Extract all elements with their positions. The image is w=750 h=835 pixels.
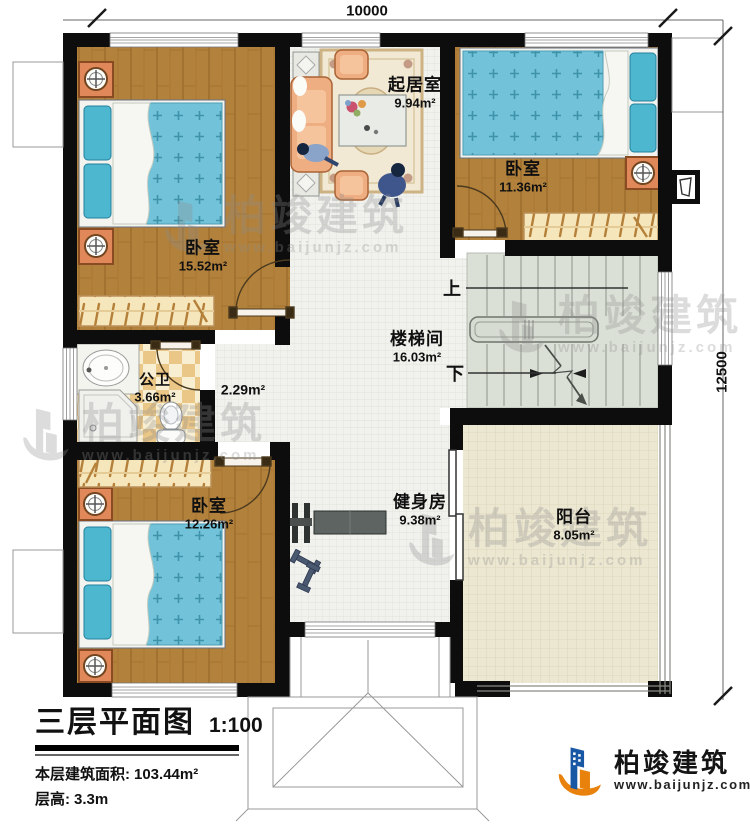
brand-name: 柏竣建筑: [614, 750, 750, 777]
nightstand: [79, 229, 113, 264]
watermark: 柏竣建筑 www.baijunjz.com: [492, 295, 742, 356]
stairs-up-label: 上: [443, 275, 461, 301]
flue: [672, 170, 700, 204]
watermark-logo-icon: [16, 405, 74, 463]
brand-logo-icon: [552, 744, 606, 798]
room-label-living-room: 起居室 9.94m²: [388, 75, 442, 110]
bed: [460, 48, 658, 158]
floor-height-value: 3.3m: [74, 791, 108, 808]
nightstand: [79, 488, 112, 520]
floor-area-label: 本层建筑面积:: [35, 766, 130, 783]
dimension-width: 10000: [346, 3, 388, 20]
room-label-bathroom: 公卫 3.66m²: [134, 371, 175, 404]
room-label-bedroom-bottom-left: 卧室 12.26m²: [185, 496, 233, 531]
wardrobe: [79, 296, 214, 326]
wardrobe: [524, 213, 658, 241]
brand-website: www.baijunjz.com: [614, 777, 750, 792]
plan-title: 三层平面图: [35, 697, 195, 741]
title-block: 三层平面图 1:100 本层建筑面积:103.44m² 层高:3.3m: [35, 697, 263, 809]
plan-scale: 1:100: [209, 714, 263, 738]
floor-area-value: 103.44m²: [134, 766, 198, 783]
nightstand: [79, 650, 112, 682]
brand-logo: 柏竣建筑 www.baijunjz.com: [552, 744, 750, 798]
room-label-bedroom-top-left: 卧室 15.52m²: [179, 238, 227, 273]
room-label-stairwell: 楼梯间 16.03m²: [390, 329, 444, 364]
dimension-height: 12500: [714, 351, 731, 393]
watermark-logo-icon: [492, 297, 550, 355]
nightstand: [626, 157, 660, 189]
title-underline-thin: [35, 754, 239, 756]
bed: [79, 521, 225, 648]
watermark: 柏竣建筑 www.baijunjz.com: [16, 403, 266, 464]
room-label-balcony: 阳台 8.05m²: [553, 507, 594, 542]
floor-plan-canvas: 10000 12500 卧室 15.52m² 起居室 9.94m² 卧室 11.…: [0, 0, 750, 835]
nightstand: [79, 62, 113, 97]
room-label-hallway: 2.29m²: [221, 382, 265, 399]
stairs-down-label: 下: [446, 360, 464, 386]
floor-height-label: 层高:: [35, 791, 70, 808]
room-label-bedroom-top-right: 卧室 11.36m²: [499, 159, 547, 194]
room-label-gym: 健身房 9.38m²: [393, 492, 447, 527]
sink: [77, 344, 139, 394]
title-underline: [35, 745, 239, 751]
